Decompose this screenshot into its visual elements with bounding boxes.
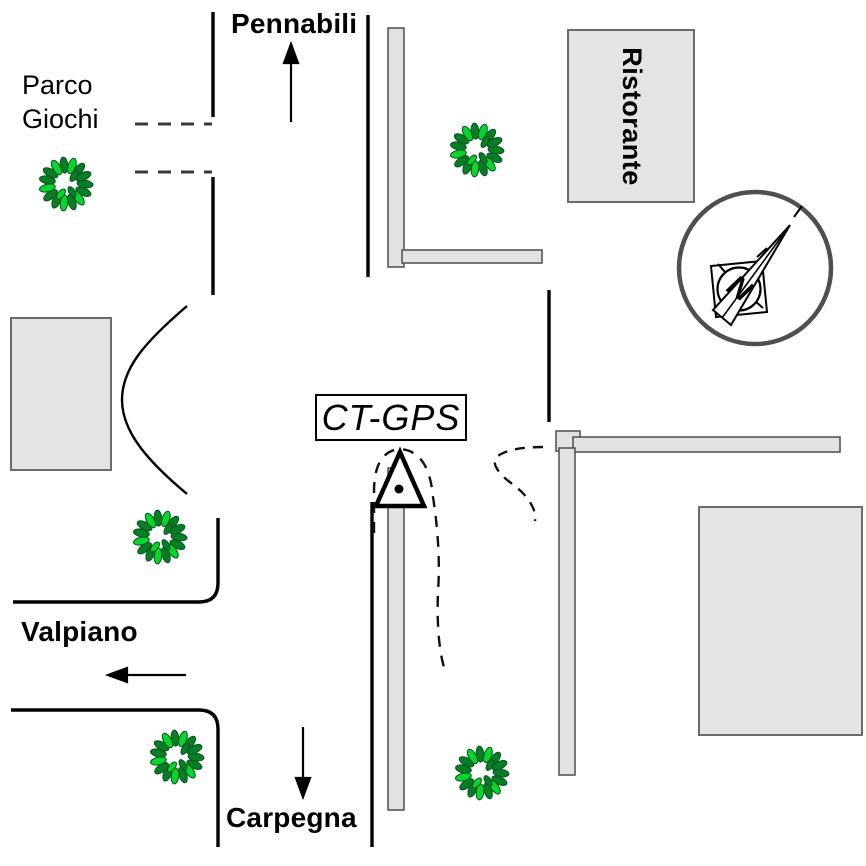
- tree-icon: [450, 123, 505, 178]
- building-west: [11, 318, 111, 470]
- building-southeast: [699, 507, 862, 735]
- gps-marker-triangle: [376, 452, 424, 506]
- wall-east-vertical: [559, 448, 575, 775]
- street-label-carpegna: Carpegna: [226, 802, 357, 834]
- gps-path-dash-hairpin: [495, 447, 543, 521]
- gps-survey-marker: [376, 452, 424, 506]
- parco-line2: Giochi: [22, 104, 99, 134]
- compass-rose: [679, 192, 831, 344]
- tree-icon: [455, 746, 510, 801]
- wall-center-vertical: [388, 468, 404, 810]
- roadside-curve: [122, 306, 187, 494]
- street-label-valpiano: Valpiano: [21, 616, 138, 648]
- gps-marker-dot: [395, 485, 404, 494]
- place-label-parco-giochi: ParcoGiochi: [22, 68, 99, 136]
- west-road-north-edge: [13, 518, 218, 602]
- tree-icon: [150, 730, 205, 785]
- gps-station-label: CT-GPS: [322, 397, 461, 439]
- gps-station-label-box: CT-GPS: [315, 394, 467, 441]
- arrow-north-head: [284, 44, 298, 63]
- wall-northwest-vertical: [388, 28, 404, 267]
- direction-arrows: [108, 44, 310, 797]
- restaurant-label: Ristorante: [616, 47, 647, 186]
- arrow-west-head: [108, 668, 127, 682]
- arrow-south-head: [296, 778, 310, 797]
- tree-icon: [39, 157, 94, 212]
- sketch-map: Pennabili ParcoGiochi Valpiano Carpegna …: [0, 0, 866, 866]
- buildings: [11, 30, 862, 735]
- tree-icon: [133, 510, 188, 565]
- restaurant-label-box: Ristorante: [568, 30, 694, 202]
- wall-northeast-horizontal: [573, 437, 840, 452]
- street-label-pennabili: Pennabili: [231, 8, 357, 40]
- parco-line1: Parco: [22, 70, 93, 100]
- wall-northwest-horizontal: [402, 250, 542, 263]
